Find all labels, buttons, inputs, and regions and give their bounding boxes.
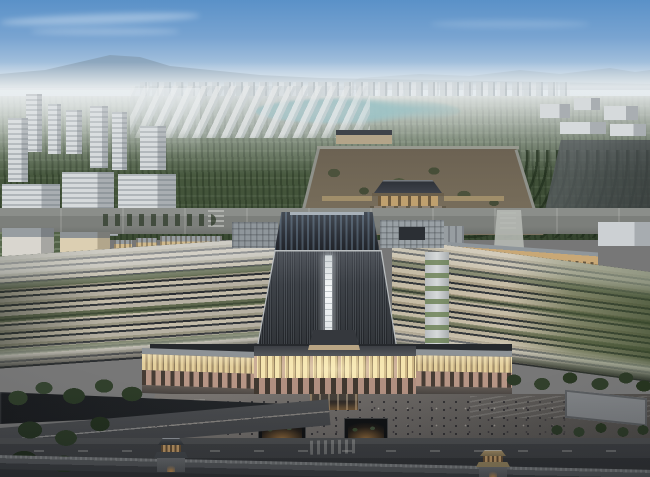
gate-base: [157, 458, 185, 472]
plaza-trees-east: [500, 366, 650, 400]
street-trees: [96, 214, 216, 226]
building: [574, 98, 600, 110]
north-flank-roof-west: [232, 222, 278, 248]
roof-spine-skylight: [325, 255, 332, 340]
building: [604, 106, 638, 120]
distant-palace-hall: [336, 130, 392, 144]
east-skylight-corridor: [425, 252, 449, 352]
gate-body: [161, 445, 181, 452]
gate-hall-body: [378, 196, 438, 206]
gate-hall-roof: [374, 180, 442, 193]
east-white-building: [598, 222, 650, 246]
wing-arcade: [412, 371, 512, 388]
right-city-district: [540, 96, 650, 156]
tower: [48, 104, 61, 154]
crosswalk: [310, 439, 356, 455]
cloud-streak: [430, 20, 590, 28]
compound-wall-north: [317, 146, 519, 149]
tower: [112, 112, 127, 170]
roadside-trees-east: [545, 418, 650, 444]
north-station-hall: [274, 212, 380, 254]
tower: [8, 118, 28, 182]
center-glass-band: [254, 356, 416, 378]
building: [610, 124, 646, 136]
tower: [66, 110, 82, 154]
gate-base: [479, 467, 507, 477]
gate-tower-east: [470, 450, 516, 477]
wing-glass-band: [412, 355, 512, 373]
north-flank-roof-east: [380, 220, 444, 248]
gate-roof-icon: [158, 438, 184, 445]
building: [560, 122, 606, 134]
gate-tower-west: [148, 438, 194, 477]
gate-wing-wall: [322, 196, 372, 201]
entrance-pavilion: [308, 330, 360, 350]
building: [540, 104, 570, 118]
cloud-streak: [30, 28, 180, 35]
center-arcade: [254, 378, 416, 394]
aerial-render-scene: Dusk bird's-eye rendering of a large rai…: [0, 0, 650, 477]
tower: [26, 94, 42, 152]
gate-wing-wall: [444, 196, 504, 201]
tower: [90, 106, 108, 168]
mid-rise: [140, 126, 166, 170]
gate-body: [483, 456, 503, 462]
north-forecourt: [494, 210, 524, 248]
